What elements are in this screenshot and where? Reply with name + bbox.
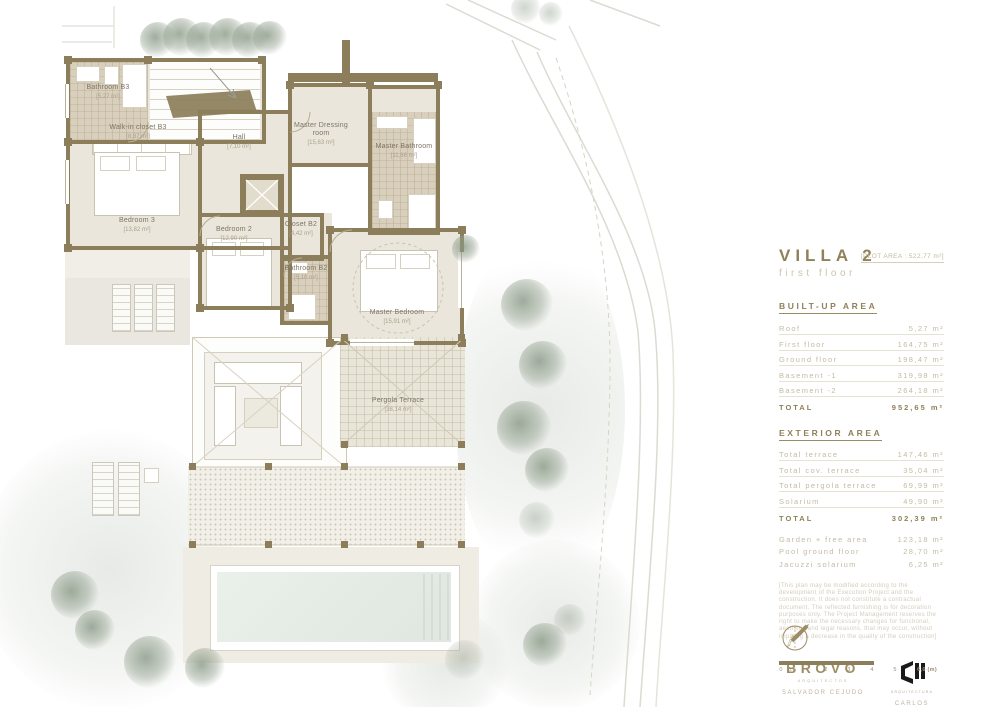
floor-plan-sheet: Bathroom B3 [5,27 m²] Walk-in closet B3 … xyxy=(0,0,1000,707)
tree xyxy=(525,448,569,492)
table-row: Total terrace147,46 m² xyxy=(779,446,944,461)
table-row: First floor164,75 m² xyxy=(779,335,944,350)
room-label-master-bedroom: Master Bedroom [15,91 m²] xyxy=(347,309,447,326)
room-label-master-bathroom: Master Bathroom [11,66 m²] xyxy=(364,143,444,160)
plot-area-label: [PLOT AREA : 522,77 m²] xyxy=(861,253,944,263)
north-compass: NORTE xyxy=(779,620,813,659)
table-row: Basement -1319,98 m² xyxy=(779,366,944,381)
room-label-closet-b2: Closet B2 [4,42 m²] xyxy=(271,221,331,238)
tree xyxy=(452,235,480,263)
cm-tagline: ARQUITECTURA xyxy=(880,690,944,694)
tree xyxy=(445,640,485,680)
table-row: Total pergola terrace69,99 m² xyxy=(779,477,944,492)
built-up-heading: BUILT-UP AREA xyxy=(779,301,877,314)
elevator-shaft xyxy=(240,174,284,216)
built-up-section: BUILT-UP AREA Roof5,27 m² First floor164… xyxy=(779,296,944,413)
compass-icon: NORTE xyxy=(779,620,813,654)
cm-person: CARLOS MORALES xyxy=(880,701,944,707)
room-label-hall: Hall [7,10 m²] xyxy=(214,134,264,151)
table-row: Ground floor198,47 m² xyxy=(779,351,944,366)
wall-fills xyxy=(288,40,438,85)
tree xyxy=(497,401,551,455)
tree xyxy=(554,604,586,636)
brovo-tagline: ARQUITECTOS xyxy=(779,678,867,683)
plot-boundary-dashed xyxy=(556,58,610,695)
room-label-master-dressing: Master Dressing room [15,63 m²] xyxy=(289,122,353,147)
table-row: Pool ground floor28,70 m² xyxy=(779,545,944,557)
tree xyxy=(539,2,563,26)
exterior-section: EXTERIOR AREA Total terrace147,46 m² Tot… xyxy=(779,423,944,570)
table-row: Total cov. terrace35,04 m² xyxy=(779,461,944,476)
tree xyxy=(253,21,287,55)
table-row: Jacuzzi solarium6,25 m² xyxy=(779,557,944,569)
room-label-walk-in-closet-b3: Walk-in closet B3 [8,87 m²] xyxy=(80,124,196,141)
room-label-pergola-terrace: Pergola Terrace [38,14 m²] xyxy=(348,397,448,414)
brovo-person: SALVADOR CEJUDO xyxy=(779,690,867,696)
table-total-row: TOTAL302,39 m² xyxy=(779,508,944,524)
room-label-bedroom3: Bedroom 3 [13,82 m²] xyxy=(97,217,177,234)
tree xyxy=(185,648,225,688)
pool-lane-lines xyxy=(424,574,448,640)
pergola-columns xyxy=(189,334,465,548)
room-label-bathroom-b2: Bathroom B2 [5,10 m²] xyxy=(266,265,346,282)
scale-bar: 0 0.5 1 2 3 4 5 6,6 (m) xyxy=(779,661,937,675)
table-row: Garden + free area123,18 m² xyxy=(779,533,944,545)
floor-subtitle: first floor xyxy=(779,268,944,279)
pergola-diagonals xyxy=(340,337,465,447)
room-label-bathroom-b3: Bathroom B3 [5,27 m²] xyxy=(73,84,143,101)
scale-tick-labels: 0 0.5 1 2 3 4 5 6,6 (m) xyxy=(779,667,937,675)
tree xyxy=(501,279,553,331)
tree xyxy=(124,636,176,688)
table-row: Solarium49,90 m² xyxy=(779,492,944,507)
table-row: Roof5,27 m² xyxy=(779,320,944,335)
exterior-heading: EXTERIOR AREA xyxy=(779,428,882,441)
table-row: Basement -2264,18 m² xyxy=(779,382,944,397)
room-label-bedroom2: Bedroom 2 [12,90 m²] xyxy=(194,226,274,243)
tree xyxy=(519,341,567,389)
top-left-road xyxy=(62,6,114,48)
tree xyxy=(75,610,115,650)
table-total-row: TOTAL952,65 m² xyxy=(779,397,944,413)
title-row: VILLA 2 [PLOT AREA : 522,77 m²] xyxy=(779,246,944,266)
void-diagonals xyxy=(192,337,345,467)
scale-bar-segments xyxy=(779,661,937,665)
tree xyxy=(519,502,555,538)
